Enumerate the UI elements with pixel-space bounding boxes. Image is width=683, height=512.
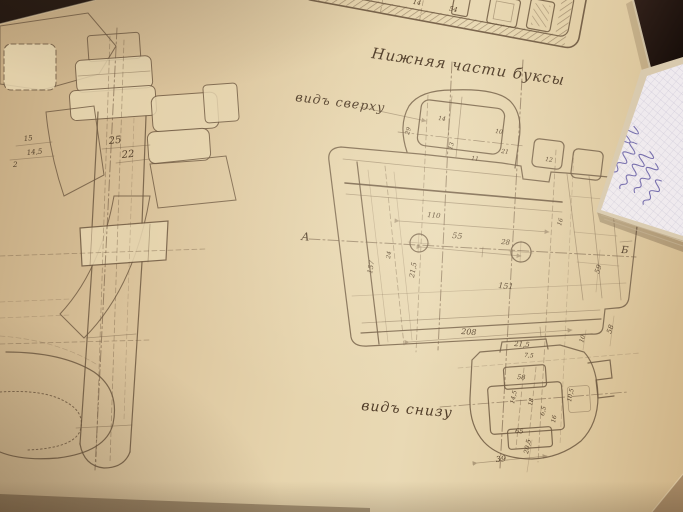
dimension-label: 14,5 [26,147,43,157]
dimension-label: 25 [107,135,122,147]
left-section-view: 15 14,5 2 25 22 [0,13,239,470]
dimension-label: 59 [593,263,604,274]
view-labels: видъ сверху видъ снизу А Б [295,89,632,421]
notebook [580,57,683,252]
dimension-label: 55 [452,231,463,241]
view-bottom-label: видъ снизу [361,398,454,421]
dimension-label: 14 [412,0,422,7]
plan-view: 110 55 28 151 21,5 157 24 16 59 58 10 20… [309,60,641,468]
dimension-label: 7,5 [524,352,534,360]
dimension-label: 54 [449,5,459,14]
dimension-label: 11 [471,155,479,163]
dimension-label: 151 [498,281,514,291]
section-letter-a: А [300,230,311,244]
dimension-label: 58 [605,323,616,334]
dimension-label: 39 [496,454,507,464]
engineering-drawing: 28 14 54 [0,0,683,512]
dimension-label: 28 [500,238,511,247]
dimension-label: 21 [500,148,509,156]
dimension-label: 2 [12,161,18,169]
dimension-label: 6,5 [539,405,548,416]
view-top-label: видъ сверху [295,89,387,115]
dimension-label: 18 [527,397,535,406]
dimension-label: 208 [460,327,477,337]
dimension-label: 157 [366,259,376,274]
dimension-label: 14 [438,115,447,123]
dimension-label: 15 [23,134,33,143]
dimension-label: 110 [427,211,442,220]
bottom-view: 7,5 58 14,5 18 6,5 16 10,5 65 20,5 39 [458,339,640,472]
dimension-label: 10 [495,128,504,136]
dimension-label: 21,5 [408,261,419,279]
dimension-label: 22 [120,149,135,161]
dimension-label: 14,5 [509,390,519,405]
dimension-label: 16 [550,414,558,423]
paper-bottom-edge-shadow [0,494,370,512]
dimension-label: 10,5 [566,388,576,403]
dimension-label: 10 [578,334,587,344]
dimension-label: 16 [556,217,565,226]
photo-of-engineering-drawing: 28 14 54 [0,0,683,512]
dimension-label: 24 [385,250,393,260]
dimension-label: 58 [517,373,526,382]
drawing-title: Нижняя части буксы [369,44,566,89]
section-letter-b: Б [620,245,630,256]
top-fragment-view: 28 14 54 [300,0,589,49]
dimension-label: 65 [515,427,524,436]
dimension-label: 29 [404,126,413,136]
dimension-label: 20,5 [522,439,533,456]
dimension-label: 12 [545,156,554,164]
